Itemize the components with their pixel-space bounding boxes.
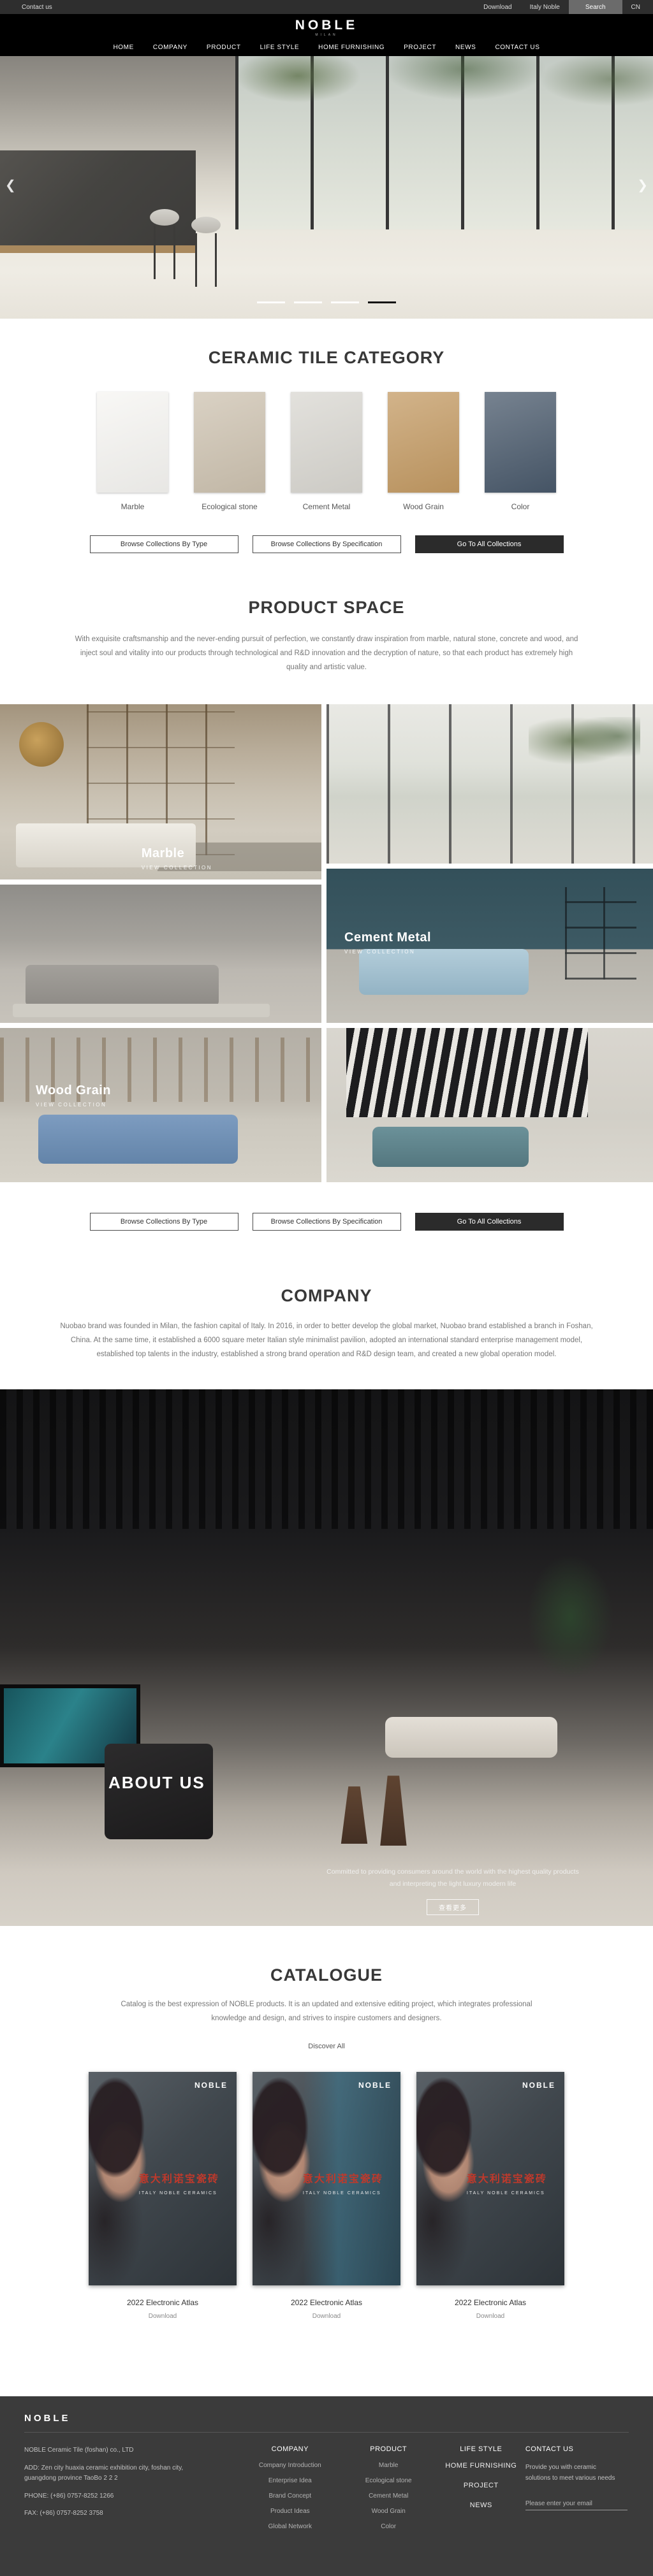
nav-item-company[interactable]: COMPANY — [143, 41, 197, 54]
tile-swatch-ecological-stone[interactable] — [194, 392, 265, 493]
nav-item-news[interactable]: NEWS — [446, 41, 485, 54]
collection-buttons-row-1: Browse Collections By Type Browse Collec… — [0, 535, 653, 553]
slider-next-icon[interactable]: ❯ — [637, 177, 648, 193]
language-switch-cn[interactable]: CN — [622, 0, 653, 14]
footer: NOBLE NOBLE Ceramic Tile (foshan) co., L… — [0, 2396, 653, 2576]
catalogue-covers-row: NOBLE 意大利诺宝瓷砖 ITALY NOBLE CERAMICS 2022 … — [0, 2072, 653, 2320]
tile-category-cement-metal[interactable]: Cement Metal — [291, 392, 362, 511]
go-to-all-collections-button[interactable]: Go To All Collections — [415, 535, 564, 553]
catalogue-cover-1[interactable]: NOBLE 意大利诺宝瓷砖 ITALY NOBLE CERAMICS — [89, 2072, 237, 2285]
footer-link-home-furnishing[interactable]: HOME FURNISHING — [437, 2462, 525, 2470]
footer-link-news[interactable]: NEWS — [437, 2501, 525, 2509]
main-nav: HOME COMPANY PRODUCT LIFE STYLE HOME FUR… — [0, 41, 653, 54]
slider-dash-3[interactable] — [331, 301, 359, 303]
hero-photo-stool — [191, 217, 221, 287]
slider-dash-2[interactable] — [294, 301, 322, 303]
footer-link-cement-metal[interactable]: Cement Metal — [353, 2493, 424, 2500]
footer-link-project[interactable]: PROJECT — [437, 2482, 525, 2489]
footer-column-product: PRODUCT Marble Ecological stone Cement M… — [353, 2445, 424, 2538]
footer-column-contact: CONTACT US Provide you with ceramic solu… — [525, 2445, 629, 2538]
catalogue-item-1: NOBLE 意大利诺宝瓷砖 ITALY NOBLE CERAMICS 2022 … — [89, 2072, 237, 2320]
gallery-image-striped-wall-showroom[interactable] — [326, 1028, 653, 1182]
catalogue-title: CATALOGUE — [0, 1965, 653, 1985]
product-space-gallery: Marble VIEW COLLECTION Wood Grain VIEW C… — [0, 704, 653, 1182]
hero-photo-stool — [150, 209, 179, 279]
browse-by-type-button[interactable]: Browse Collections By Type — [90, 535, 238, 553]
nav-item-contact-us[interactable]: CONTACT US — [485, 41, 549, 54]
hero-slider: ❮ ❯ — [0, 56, 653, 319]
italy-noble-link[interactable]: Italy Noble — [521, 0, 569, 14]
atlas-download-link-1[interactable]: Download — [89, 2313, 237, 2320]
footer-column-life-style: LIFE STYLE HOME FURNISHING PROJECT NEWS — [437, 2445, 525, 2538]
about-us-banner: ABOUT US Committed to providing consumer… — [0, 1389, 653, 1926]
contact-us-link[interactable]: Contact us — [0, 0, 52, 14]
tile-category-ecological-stone[interactable]: Ecological stone — [194, 392, 265, 511]
catalogue-cover-2[interactable]: NOBLE 意大利诺宝瓷砖 ITALY NOBLE CERAMICS — [253, 2072, 400, 2285]
search-button[interactable]: Search — [569, 0, 622, 14]
footer-link-enterprise-idea[interactable]: Enterprise Idea — [240, 2477, 341, 2484]
marble-collection-overlay[interactable]: Marble VIEW COLLECTION — [142, 846, 212, 871]
atlas-label-1: 2022 Electronic Atlas — [89, 2298, 237, 2307]
section-product-space: PRODUCT SPACE With exquisite craftsmansh… — [0, 561, 653, 704]
company-description: Nuobao brand was founded in Milan, the f… — [55, 1320, 598, 1362]
about-photo-plant — [513, 1551, 627, 1716]
footer-link-ecological-stone[interactable]: Ecological stone — [353, 2477, 424, 2484]
category-section-title: CERAMIC TILE CATEGORY — [0, 348, 653, 368]
atlas-label-3: 2022 Electronic Atlas — [416, 2298, 564, 2307]
footer-link-marble[interactable]: Marble — [353, 2462, 424, 2469]
company-title: COMPANY — [0, 1286, 653, 1306]
top-utility-bar: Contact us Download Italy Noble Search C… — [0, 0, 653, 14]
catalogue-item-2: NOBLE 意大利诺宝瓷砖 ITALY NOBLE CERAMICS 2022 … — [253, 2072, 400, 2320]
page: Contact us Download Italy Noble Search C… — [0, 0, 653, 2576]
download-link[interactable]: Download — [474, 0, 520, 14]
collection-buttons-strip: Browse Collections By Type Browse Collec… — [0, 1182, 653, 1262]
cement-metal-collection-overlay[interactable]: Cement Metal VIEW COLLECTION — [344, 930, 431, 955]
slider-prev-icon[interactable]: ❮ — [5, 177, 16, 193]
wood-grain-collection-overlay[interactable]: Wood Grain VIEW COLLECTION — [36, 1083, 111, 1108]
nav-item-home[interactable]: HOME — [103, 41, 143, 54]
footer-fax: FAX: (+86) 0757-8252 3758 — [24, 2508, 202, 2519]
footer-link-brand-concept[interactable]: Brand Concept — [240, 2493, 341, 2500]
collection-buttons-row-2: Browse Collections By Type Browse Collec… — [0, 1213, 653, 1231]
gallery-image-grey-livingroom[interactable] — [0, 885, 321, 1023]
discover-all-link[interactable]: Discover All — [308, 2043, 344, 2050]
brand-logo-sub: MILAN — [0, 33, 653, 37]
slider-dash-1[interactable] — [257, 301, 285, 303]
about-photo-sofa — [385, 1717, 557, 1758]
product-space-title: PRODUCT SPACE — [0, 598, 653, 618]
browse-by-type-button-2[interactable]: Browse Collections By Type — [90, 1213, 238, 1231]
about-photo-side-table — [339, 1786, 369, 1844]
footer-address: ADD: Zen city huaxia ceramic exhibition … — [24, 2463, 187, 2484]
section-company: COMPANY Nuobao brand was founded in Mila… — [0, 1262, 653, 1389]
section-ceramic-tile-category: CERAMIC TILE CATEGORY Marble Ecological … — [0, 319, 653, 561]
footer-phone: PHONE: (+86) 0757-8252 1266 — [24, 2491, 202, 2502]
atlas-label-2: 2022 Electronic Atlas — [253, 2298, 400, 2307]
footer-company-name: NOBLE Ceramic Tile (foshan) co., LTD — [24, 2445, 202, 2456]
newsletter-email-input[interactable] — [525, 2498, 627, 2510]
tile-swatch-color[interactable] — [485, 392, 556, 493]
go-to-all-collections-button-2[interactable]: Go To All Collections — [415, 1213, 564, 1231]
footer-link-product-ideas[interactable]: Product Ideas — [240, 2508, 341, 2515]
tile-swatch-cement-metal[interactable] — [291, 392, 362, 493]
gallery-image-glass-doors-showroom[interactable] — [326, 704, 653, 864]
hero-photo-windows — [235, 56, 653, 229]
tile-category-color[interactable]: Color — [485, 392, 556, 511]
footer-link-global-network[interactable]: Global Network — [240, 2523, 341, 2530]
nav-item-home-furnishing[interactable]: HOME FURNISHING — [309, 41, 394, 54]
tile-swatch-wood-grain[interactable] — [388, 392, 459, 493]
tile-swatch-row: Marble Ecological stone Cement Metal Woo… — [0, 392, 653, 511]
footer-column-company: COMPANY Company Introduction Enterprise … — [240, 2445, 341, 2538]
product-space-description: With exquisite craftsmanship and the nev… — [71, 633, 582, 675]
gallery-image-wood-grain-showroom[interactable]: Wood Grain VIEW COLLECTION — [0, 1028, 321, 1182]
footer-link-company-introduction[interactable]: Company Introduction — [240, 2462, 341, 2469]
catalogue-description: Catalog is the best expression of NOBLE … — [116, 1998, 537, 2026]
gallery-image-cement-metal-showroom[interactable]: Cement Metal VIEW COLLECTION — [326, 869, 653, 1023]
about-us-title: ABOUT US — [108, 1773, 205, 1793]
footer-link-wood-grain[interactable]: Wood Grain — [353, 2508, 424, 2515]
tile-swatch-marble[interactable] — [97, 392, 168, 493]
tile-category-wood-grain[interactable]: Wood Grain — [388, 392, 459, 511]
site-header: NOBLE MILAN HOME COMPANY PRODUCT LIFE ST… — [0, 14, 653, 56]
catalogue-item-3: NOBLE 意大利诺宝瓷砖 ITALY NOBLE CERAMICS 2022 … — [416, 2072, 564, 2320]
browse-by-specification-button-2[interactable]: Browse Collections By Specification — [253, 1213, 401, 1231]
atlas-download-link-3[interactable]: Download — [416, 2313, 564, 2320]
footer-link-color[interactable]: Color — [353, 2523, 424, 2530]
footer-contact-text: Provide you with ceramic solutions to me… — [525, 2462, 621, 2484]
gallery-decor-circle — [19, 722, 64, 767]
nav-item-project[interactable]: PROJECT — [394, 41, 446, 54]
about-photo-side-table — [379, 1776, 408, 1846]
brand-logo[interactable]: NOBLE — [0, 14, 653, 32]
browse-by-specification-button[interactable]: Browse Collections By Specification — [253, 535, 401, 553]
gallery-image-marble-showroom[interactable]: Marble VIEW COLLECTION — [0, 704, 321, 879]
footer-company-info: NOBLE Ceramic Tile (foshan) co., LTD ADD… — [24, 2445, 202, 2538]
slider-dash-4-active[interactable] — [368, 301, 396, 303]
section-catalogue: CATALOGUE Catalog is the best expression… — [0, 1926, 653, 2396]
tile-category-marble[interactable]: Marble — [97, 392, 168, 511]
nav-item-life-style[interactable]: LIFE STYLE — [251, 41, 309, 54]
about-read-more-button[interactable]: 查看更多 — [427, 1899, 479, 1915]
catalogue-cover-3[interactable]: NOBLE 意大利诺宝瓷砖 ITALY NOBLE CERAMICS — [416, 2072, 564, 2285]
nav-item-product[interactable]: PRODUCT — [197, 41, 251, 54]
about-us-text: Committed to providing consumers around … — [300, 1866, 606, 1915]
footer-logo: NOBLE — [24, 2396, 629, 2424]
slider-pagination — [0, 301, 653, 303]
atlas-download-link-2[interactable]: Download — [253, 2313, 400, 2320]
footer-divider — [24, 2432, 629, 2433]
